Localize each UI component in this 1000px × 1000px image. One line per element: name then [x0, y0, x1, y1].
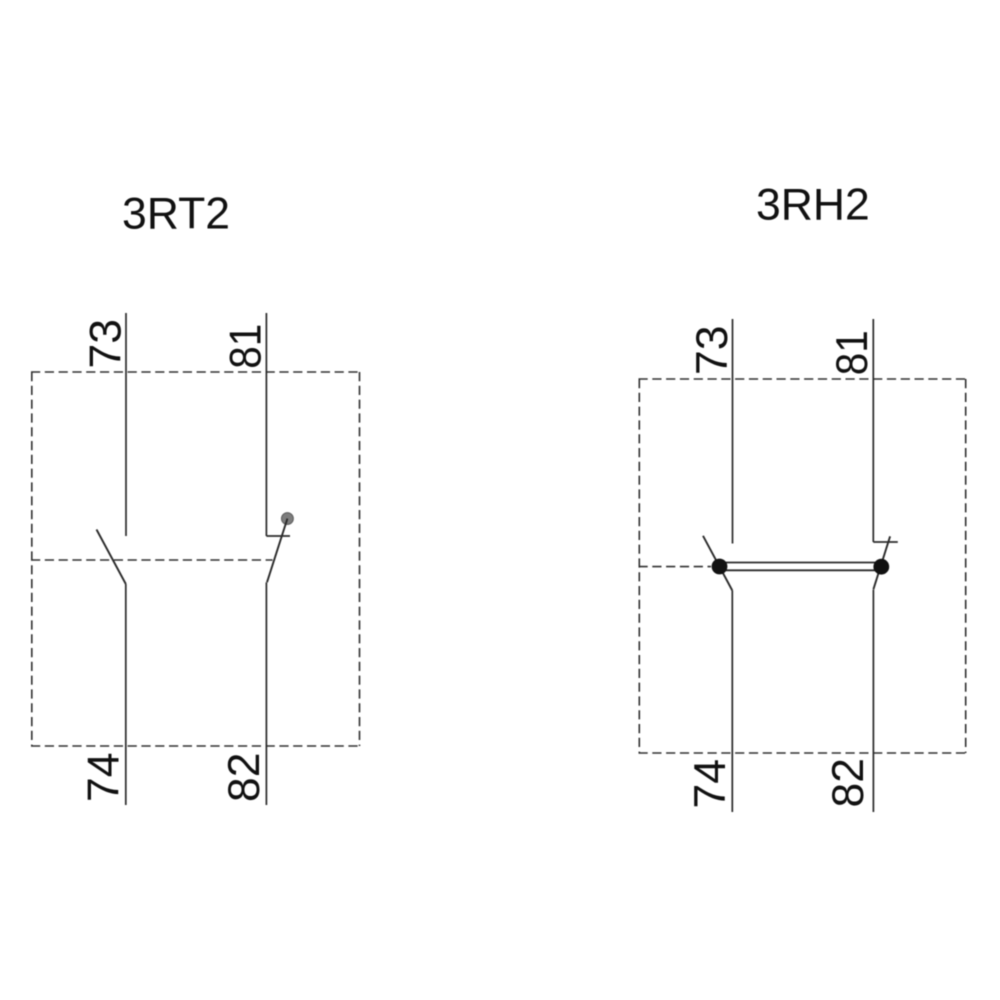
svg-text:74: 74	[80, 753, 129, 803]
svg-text:74: 74	[686, 759, 735, 809]
svg-text:3RH2: 3RH2	[756, 181, 870, 230]
svg-text:73: 73	[688, 326, 737, 376]
svg-text:81: 81	[222, 324, 271, 369]
svg-text:73: 73	[82, 319, 131, 369]
svg-text:3RT2: 3RT2	[122, 190, 230, 239]
svg-text:82: 82	[824, 758, 873, 808]
svg-text:81: 81	[828, 330, 877, 375]
svg-text:82: 82	[220, 753, 269, 803]
